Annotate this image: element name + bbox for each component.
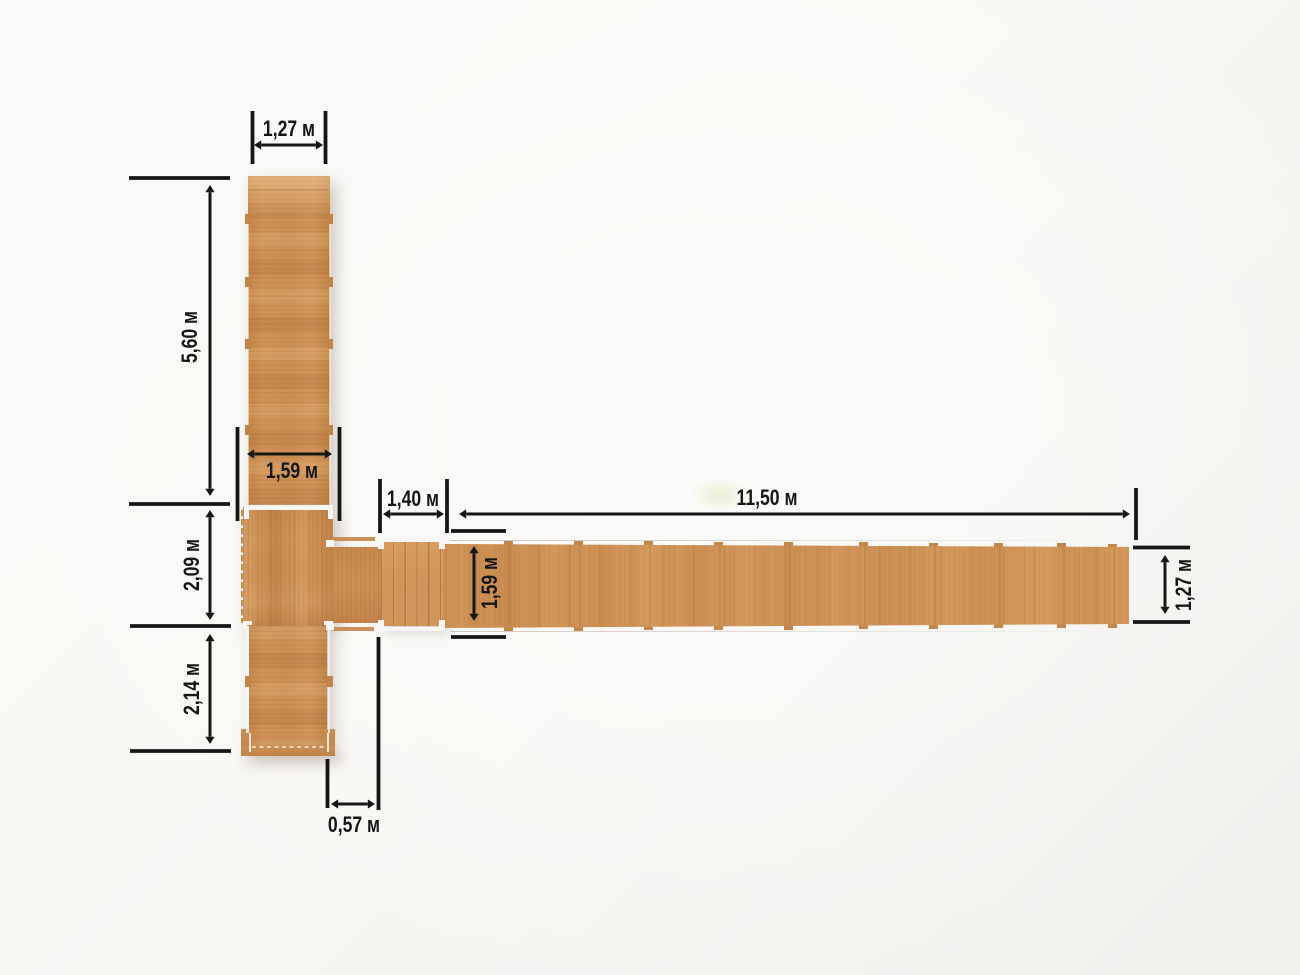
svg-text:2,14 м: 2,14 м xyxy=(180,663,204,715)
svg-text:0,57 м: 0,57 м xyxy=(328,813,380,837)
svg-text:1,27 м: 1,27 м xyxy=(263,117,315,141)
svg-text:2,09 м: 2,09 м xyxy=(180,539,204,591)
svg-text:1,59 м: 1,59 м xyxy=(478,557,502,609)
svg-text:5,60 м: 5,60 м xyxy=(178,311,202,363)
svg-text:1,59 м: 1,59 м xyxy=(266,459,318,483)
svg-text:11,50 м: 11,50 м xyxy=(737,486,798,510)
svg-text:1,40 м: 1,40 м xyxy=(387,487,439,511)
svg-text:1,27 м: 1,27 м xyxy=(1172,559,1196,611)
